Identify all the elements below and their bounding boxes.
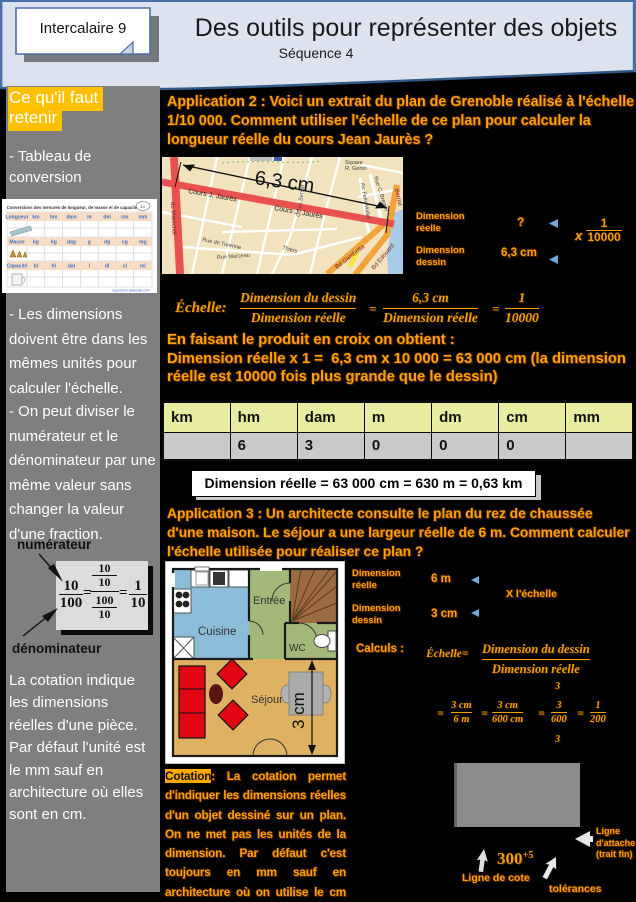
svg-text:km: km (32, 215, 40, 221)
svg-text:mm: mm (138, 215, 147, 221)
svg-text:mg: mg (139, 240, 147, 246)
svg-text:capuchon-alaecole.com: capuchon-alaecole.com (112, 289, 150, 293)
svg-text:Longueur: Longueur (5, 215, 28, 221)
svg-text:cg: cg (122, 240, 128, 246)
svg-text:kg: kg (33, 240, 39, 246)
svg-text:R. Genin: R. Genin (345, 166, 367, 172)
svg-text:Capacité: Capacité (7, 264, 28, 270)
svg-text:g: g (88, 240, 91, 246)
svg-text:m: m (87, 215, 92, 221)
svg-text:dag: dag (67, 240, 76, 246)
svg-text:Masse: Masse (9, 240, 25, 246)
svg-text:hg: hg (51, 240, 57, 246)
svg-text:dg: dg (104, 240, 110, 246)
svg-text:dl: dl (105, 264, 110, 270)
svg-text:dam: dam (66, 215, 77, 221)
svg-text:kl: kl (34, 264, 39, 270)
svg-text:3 cm: 3 cm (289, 692, 308, 729)
svg-text:dm: dm (103, 215, 111, 221)
svg-text:hm: hm (50, 215, 58, 221)
svg-text:Séjour: Séjour (251, 694, 283, 706)
svg-text:ml: ml (140, 264, 146, 270)
svg-text:Conversions des mesures de lon: Conversions des mesures de longueur, de … (7, 205, 138, 210)
svg-text:WC: WC (289, 643, 306, 654)
svg-text:Entrée: Entrée (253, 595, 285, 607)
svg-text:cl: cl (123, 264, 128, 270)
svg-text:hl: hl (51, 264, 56, 270)
svg-text:1a: 1a (140, 204, 145, 209)
svg-text:Cuisine: Cuisine (198, 626, 236, 638)
svg-text:dal: dal (68, 264, 76, 270)
svg-text:cm: cm (121, 215, 129, 221)
